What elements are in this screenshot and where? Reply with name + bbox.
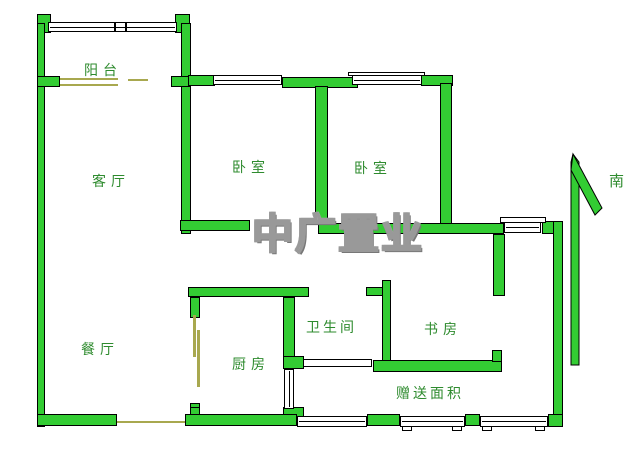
label-living-room: 客厅 — [92, 171, 130, 191]
kitchen-right-wall — [283, 297, 295, 359]
study-hanging-wall — [493, 234, 505, 296]
wall-bottom-right-corner — [548, 414, 563, 427]
label-bathroom: 卫生间 — [306, 317, 357, 337]
wall-bottom-seg2 — [367, 414, 400, 426]
wall-bottom-kitchen — [185, 414, 297, 426]
balcony-door-stub-left — [37, 76, 60, 87]
kitchen-top-wall — [188, 287, 309, 297]
label-bedroom-right: 卧室 — [354, 158, 392, 178]
bedroom-right-window — [352, 75, 422, 85]
study-bottom-wall — [373, 360, 502, 372]
label-bedroom-left: 卧室 — [232, 157, 270, 177]
bathroom-bottom-window — [303, 359, 372, 367]
bedroom-right-east-wall — [440, 83, 452, 228]
label-study: 书房 — [424, 319, 462, 339]
bedroom-left-bottom-wall — [180, 220, 250, 231]
wall-right-exterior — [553, 221, 563, 422]
floor-plan: 阳台 客厅 卧室 卧室 餐厅 厨房 卫生间 书房 赠送面积 南 中广置业 — [0, 0, 640, 451]
study-left-stub — [366, 287, 383, 296]
study-bottom-stub-up — [492, 350, 502, 362]
balcony-sliding-door-leaf — [128, 79, 148, 81]
label-kitchen: 厨房 — [232, 354, 270, 374]
study-top-window — [504, 222, 541, 233]
label-bonus-area: 赠送面积 — [396, 383, 464, 403]
balcony-window-mullion — [114, 23, 127, 31]
label-balcony: 阳台 — [84, 60, 122, 80]
bottom-opening-line — [117, 421, 185, 423]
kitchen-back-door — [284, 369, 294, 409]
wall-bottom-seg3 — [465, 414, 480, 426]
bottom-window-2 — [400, 416, 465, 427]
wall-balcony-right — [181, 23, 191, 234]
north-arrow-icon — [563, 146, 608, 370]
kitchen-door-line-a — [193, 315, 196, 357]
bedroom-left-top-wall — [188, 75, 215, 86]
bottom-window-1 — [297, 416, 367, 427]
label-dining-room: 餐厅 — [81, 339, 119, 359]
bottom-window-3 — [480, 416, 548, 427]
kitchen-door-line-b — [197, 330, 200, 387]
wall-bottom-bump — [190, 407, 200, 415]
kitchen-right-foot — [283, 356, 304, 369]
bedroom-left-window — [213, 75, 282, 85]
brand-watermark: 中广置业 — [252, 200, 424, 260]
study-left-wall — [382, 280, 391, 366]
wall-bottom-left — [37, 414, 117, 426]
balcony-window — [48, 22, 177, 32]
label-south: 南 — [609, 170, 624, 191]
